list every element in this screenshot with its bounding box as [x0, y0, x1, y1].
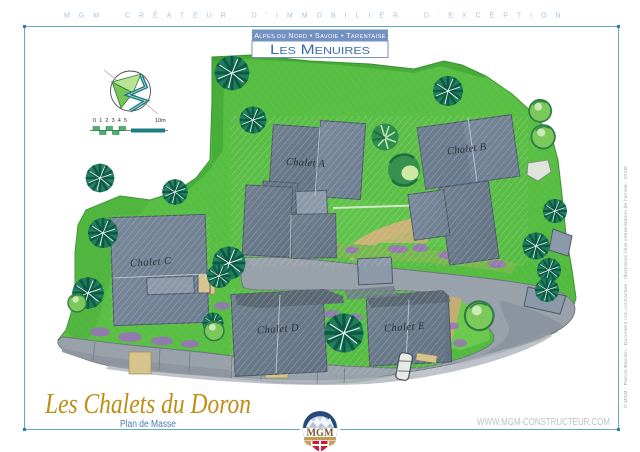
svg-text:10m: 10m — [155, 118, 166, 124]
svg-text:© MGM - Patrick Blandin - Docu: © MGM - Patrick Blandin - Document non c… — [622, 166, 628, 408]
svg-text:Les Chalets du Doron: Les Chalets du Doron — [44, 389, 251, 420]
svg-text:WWW.MGM-CONSTRUCTEUR.COM: WWW.MGM-CONSTRUCTEUR.COM — [477, 416, 610, 428]
svg-text:ALPES DU NORD • SAVOIE • TAREN: ALPES DU NORD • SAVOIE • TARENTAISE — [254, 33, 386, 40]
svg-text:Plan de Masse: Plan de Masse — [120, 419, 176, 430]
svg-text:MGM CRÉATEUR D'IMMOBILIER D'EX: MGM CRÉATEUR D'IMMOBILIER D'EXCEPTION — [64, 11, 568, 20]
svg-text:Chalet A: Chalet A — [286, 157, 326, 170]
svg-text:0 1 2 3 4 5: 0 1 2 3 4 5 — [93, 118, 127, 124]
